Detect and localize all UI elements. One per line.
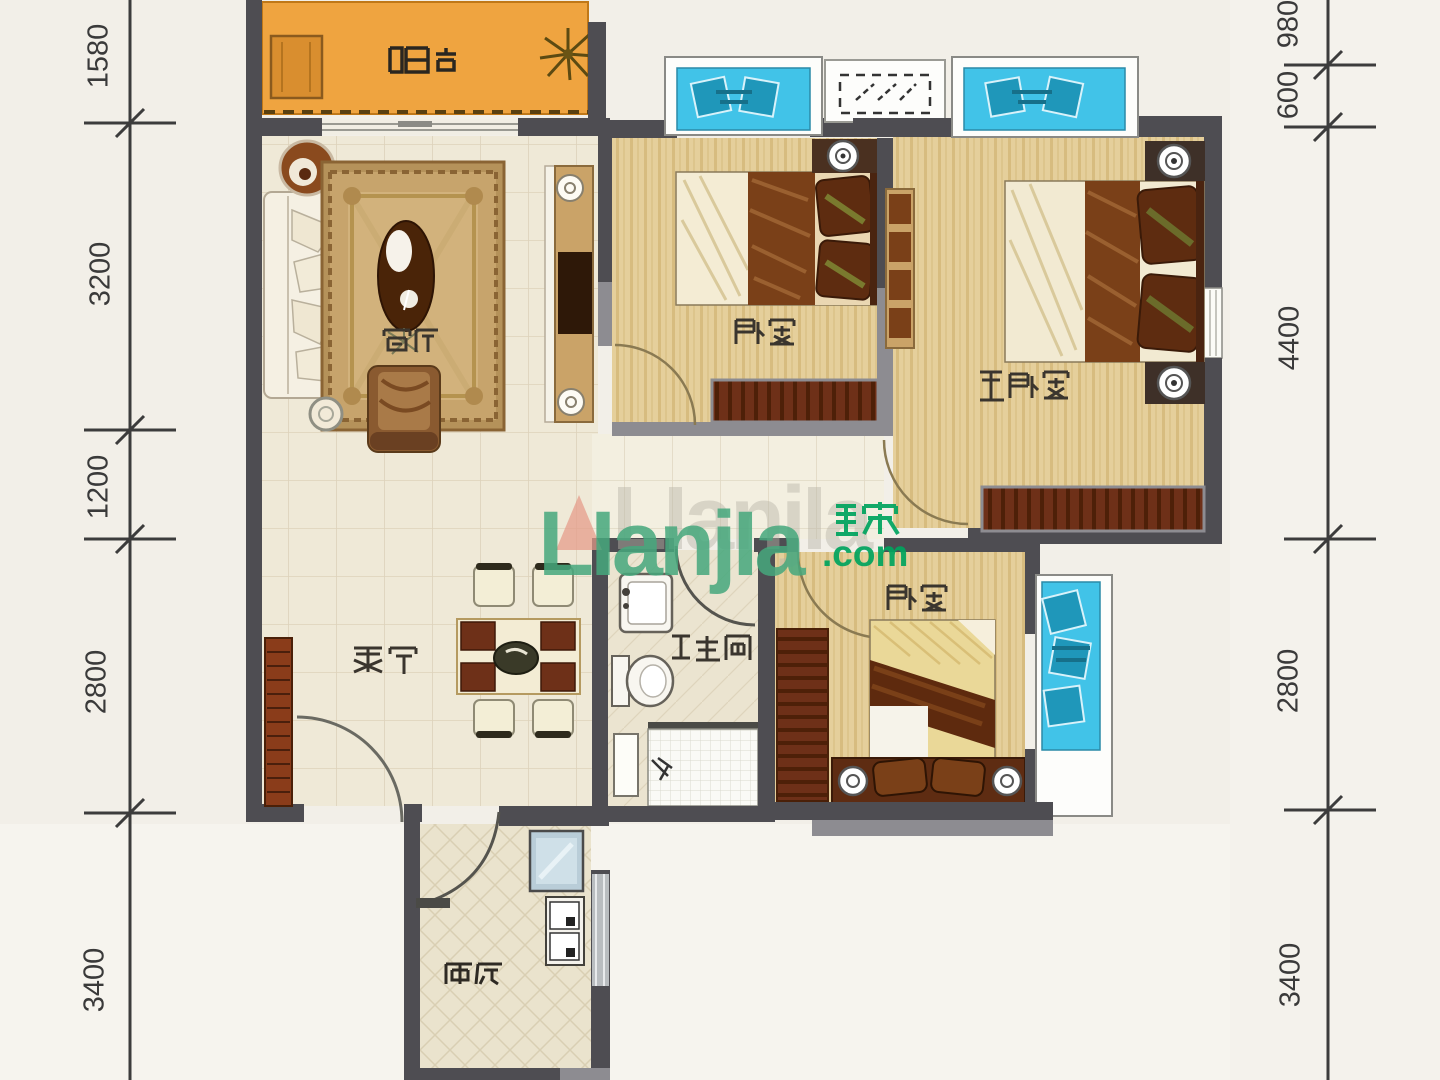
svg-text:4400: 4400 bbox=[1274, 306, 1306, 371]
svg-text:LIanjIa: LIanjIa bbox=[538, 493, 806, 595]
svg-text:.com: .com bbox=[822, 533, 908, 574]
svg-text:1580: 1580 bbox=[83, 24, 115, 89]
svg-text:3400: 3400 bbox=[79, 948, 111, 1013]
svg-text:2800: 2800 bbox=[1273, 649, 1305, 714]
svg-text:3200: 3200 bbox=[85, 242, 117, 307]
svg-text:3400: 3400 bbox=[1275, 943, 1307, 1008]
svg-text:600: 600 bbox=[1273, 71, 1305, 119]
svg-text:1200: 1200 bbox=[83, 455, 115, 520]
svg-text:2800: 2800 bbox=[81, 650, 113, 715]
svg-text:980: 980 bbox=[1273, 0, 1305, 48]
